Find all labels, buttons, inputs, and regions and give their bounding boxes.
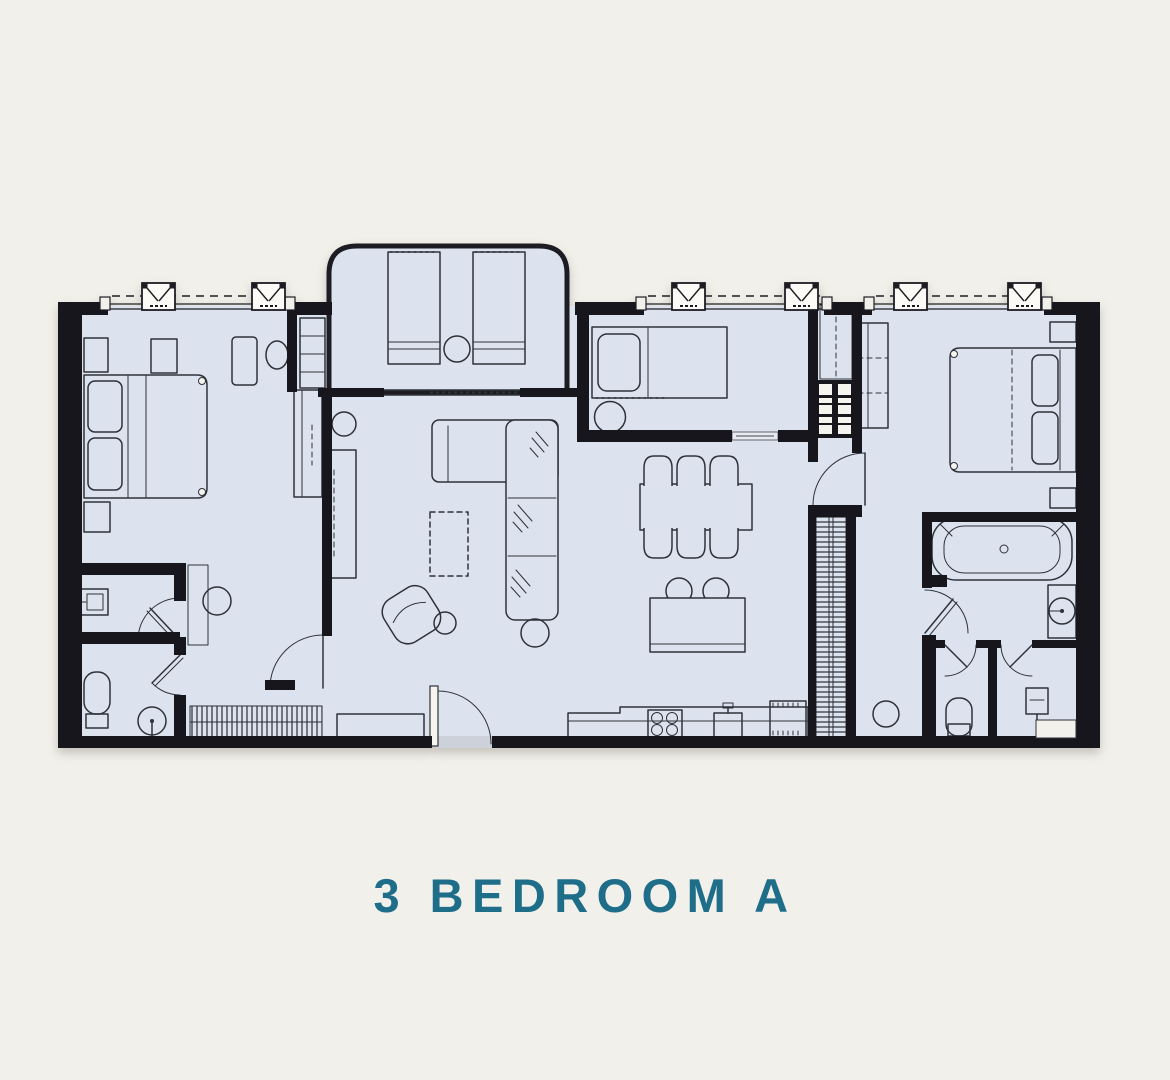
dining-table-icon bbox=[640, 484, 752, 530]
window-icon bbox=[636, 283, 832, 310]
kitchen-island-icon bbox=[650, 598, 745, 652]
walk-in-closet-icon bbox=[816, 517, 846, 738]
pillow-icon bbox=[88, 381, 122, 432]
dining-chair-icon bbox=[677, 528, 705, 558]
dining-chair-icon bbox=[677, 456, 705, 486]
plan-title: 3 BEDROOM A bbox=[0, 868, 1170, 923]
floor-plan-page: 3 BEDROOM A bbox=[0, 0, 1170, 1080]
pillow-icon bbox=[598, 334, 640, 391]
dining-area bbox=[640, 456, 752, 652]
window-icon bbox=[864, 283, 1052, 310]
apartment-plan bbox=[58, 246, 1100, 748]
balcony-wall bbox=[329, 246, 567, 392]
pillow-icon bbox=[1032, 412, 1058, 464]
window-icon bbox=[100, 283, 295, 310]
dining-chair-icon bbox=[644, 456, 672, 486]
dining-chair-icon bbox=[644, 528, 672, 558]
pillow-icon bbox=[88, 438, 122, 490]
washer-dryer-icon bbox=[815, 380, 855, 438]
dining-chair-icon bbox=[710, 456, 738, 486]
bedroom-2-sliding-door bbox=[732, 432, 778, 440]
service-niche bbox=[1036, 720, 1076, 738]
pillow-icon bbox=[1032, 355, 1058, 406]
dining-chair-icon bbox=[710, 528, 738, 558]
